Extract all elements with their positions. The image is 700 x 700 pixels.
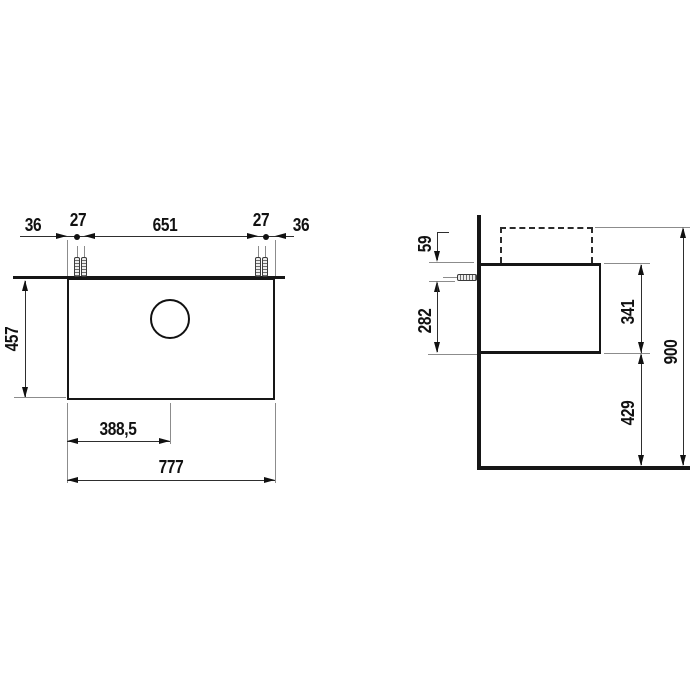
dimension-arrow xyxy=(638,342,644,353)
mounting-screw-icon xyxy=(255,257,261,277)
dim-label-edge-left: 36 xyxy=(25,216,42,234)
dim-label-anchor-to-bottom: 282 xyxy=(416,309,434,334)
extension-line xyxy=(429,262,474,263)
dimension-line-basin-center xyxy=(67,441,170,442)
dimension-tick xyxy=(437,232,449,233)
dimension-line-depth xyxy=(25,281,26,397)
washbasin-dashed-outline xyxy=(500,227,593,263)
dim-label-edge-right: 36 xyxy=(293,216,310,234)
dim-label-pair-left: 27 xyxy=(70,211,87,229)
dim-label-floor-clearance: 429 xyxy=(619,401,637,426)
dim-label-total-height: 900 xyxy=(662,340,680,365)
basin-cutout-circle xyxy=(150,299,190,339)
dim-label-basin-center: 388,5 xyxy=(99,420,136,438)
dim-label-total-width: 777 xyxy=(159,458,184,476)
extension-line xyxy=(429,281,455,282)
extension-line xyxy=(275,403,276,483)
dimension-line-total-height xyxy=(683,229,684,465)
dimension-arrow xyxy=(638,353,644,364)
dimension-arrow xyxy=(84,233,95,239)
mounting-screw-icon xyxy=(81,257,87,277)
mounting-screw-icon xyxy=(262,257,268,277)
dimension-arrow xyxy=(56,233,67,239)
dimension-arrow xyxy=(434,342,440,353)
extension-line xyxy=(595,227,690,228)
extension-line xyxy=(275,240,276,276)
dim-label-pair-right: 27 xyxy=(253,211,270,229)
dimension-arrow xyxy=(638,264,644,275)
dim-label-cabinet-height: 341 xyxy=(619,300,637,325)
dimension-arrow xyxy=(680,227,686,238)
extension-line xyxy=(67,240,68,276)
dimension-arrow xyxy=(22,280,28,291)
extension-line xyxy=(428,354,477,355)
dimension-arrow xyxy=(264,477,275,483)
mounting-screw-icon xyxy=(74,257,80,277)
dimension-arrow xyxy=(638,455,644,466)
dimension-arrow xyxy=(159,438,170,444)
dimension-line-total-width xyxy=(67,480,275,481)
dimension-line-floor-clearance xyxy=(641,355,642,465)
dimension-line-cabinet-height xyxy=(641,265,642,353)
dimension-arrow xyxy=(67,477,78,483)
floor-line xyxy=(477,466,690,470)
cabinet-outline-plan xyxy=(67,278,275,400)
wall-anchor-screw-icon xyxy=(457,274,477,281)
dim-label-top-to-anchor: 59 xyxy=(416,236,434,253)
screw-stem xyxy=(443,277,458,278)
dim-label-depth: 457 xyxy=(3,327,21,352)
dim-label-screw-span: 651 xyxy=(153,216,178,234)
extension-line xyxy=(14,397,66,398)
dimension-dot xyxy=(263,234,269,240)
dimension-arrow xyxy=(434,251,440,262)
technical-drawing-canvas: 36 27 651 27 36 457 388,5 777 59 282 34 xyxy=(0,0,700,700)
dimension-dot xyxy=(74,234,80,240)
dimension-arrow xyxy=(67,438,78,444)
dimension-arrow xyxy=(680,455,686,466)
cabinet-outline-side xyxy=(481,263,601,354)
dimension-arrow xyxy=(275,233,286,239)
dimension-arrow xyxy=(247,233,258,239)
